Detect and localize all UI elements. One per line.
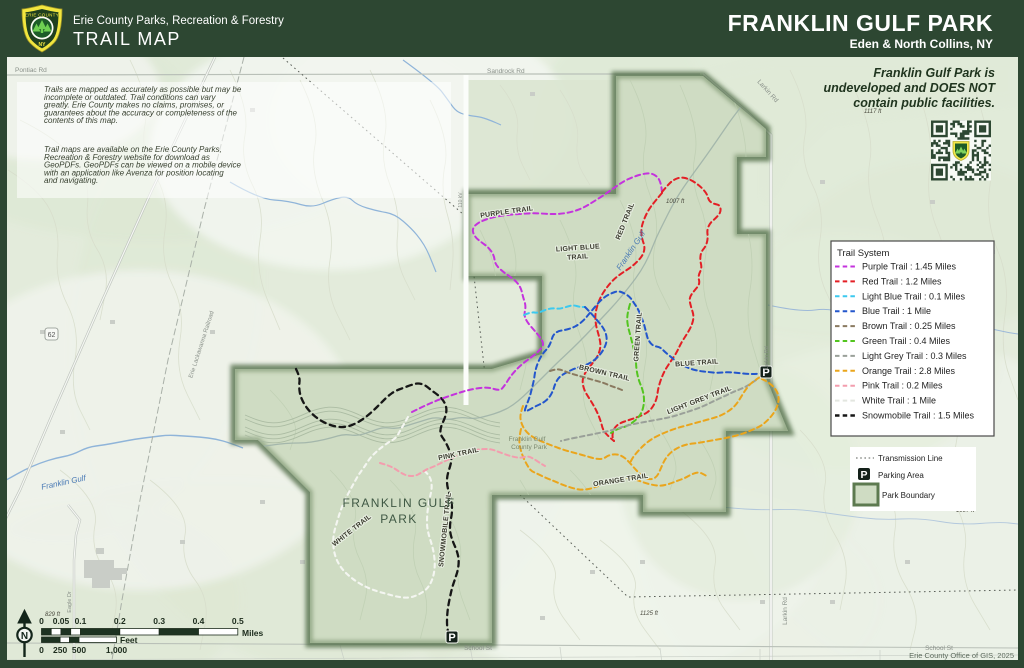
svg-text:Pontiac Rd: Pontiac Rd (15, 67, 47, 74)
svg-text:contain public facilities.: contain public facilities. (853, 96, 995, 110)
svg-text:Snowmobile Trail : 1.5 Miles: Snowmobile Trail : 1.5 Miles (862, 411, 975, 421)
svg-text:White Trail : 1 Mile: White Trail : 1 Mile (862, 396, 936, 406)
svg-text:Feet: Feet (120, 635, 138, 645)
svg-text:1,000: 1,000 (106, 645, 128, 655)
svg-text:ERIE COUNTY: ERIE COUNTY (25, 13, 59, 18)
svg-text:FRANKLIN GULF PARK: FRANKLIN GULF PARK (728, 10, 993, 36)
svg-text:TRAIL MAP: TRAIL MAP (73, 29, 181, 49)
svg-text:Franklin Gulf: Franklin Gulf (509, 436, 546, 443)
svg-text:0.05: 0.05 (53, 616, 70, 626)
svg-text:NY: NY (39, 42, 47, 48)
svg-text:School St: School St (464, 645, 492, 652)
svg-text:Light Grey Trail : 0.3 Miles: Light Grey Trail : 0.3 Miles (862, 351, 967, 361)
svg-text:Eagle Dr: Eagle Dr (67, 591, 73, 613)
svg-text:0: 0 (39, 616, 44, 626)
svg-text:P: P (448, 632, 455, 644)
svg-text:0.2: 0.2 (114, 616, 126, 626)
svg-text:Trail System: Trail System (837, 248, 890, 259)
svg-text:1125 ft: 1125 ft (640, 611, 658, 617)
svg-text:Orange Trail : 2.8 Miles: Orange Trail : 2.8 Miles (862, 366, 956, 376)
svg-text:Green Trail : 0.4 Miles: Green Trail : 0.4 Miles (862, 336, 951, 346)
svg-text:Erie County Office of GIS, 202: Erie County Office of GIS, 2025 (909, 651, 1014, 660)
svg-text:0.1: 0.1 (75, 616, 87, 626)
svg-text:0: 0 (39, 645, 44, 655)
svg-text:P: P (860, 469, 867, 481)
svg-text:0.4: 0.4 (193, 616, 205, 626)
svg-text:Sandrock Rd: Sandrock Rd (487, 68, 525, 75)
svg-text:1007 ft: 1007 ft (666, 199, 685, 205)
svg-text:Brown Trail : 0.25 Miles: Brown Trail : 0.25 Miles (862, 321, 956, 331)
svg-text:Transmission Line: Transmission Line (878, 454, 943, 463)
svg-text:Eden & North Collins, NY: Eden & North Collins, NY (850, 37, 993, 51)
svg-text:Purple Trail : 1.45 Miles: Purple Trail : 1.45 Miles (862, 262, 957, 272)
svg-text:PARK: PARK (380, 512, 417, 526)
svg-text:0.5: 0.5 (232, 616, 244, 626)
svg-text:FRANKLIN GULF: FRANKLIN GULF (343, 496, 456, 510)
svg-text:Park Boundary: Park Boundary (882, 491, 935, 500)
svg-text:Red Trail : 1.2 Miles: Red Trail : 1.2 Miles (862, 276, 942, 286)
svg-text:Franklin Gulf Park is: Franklin Gulf Park is (873, 66, 995, 80)
svg-text:Erie County Parks, Recreation: Erie County Parks, Recreation & Forestry (73, 15, 284, 27)
svg-text:contents of this map.: contents of this map. (44, 116, 118, 125)
svg-text:N: N (21, 631, 28, 642)
svg-text:and navigating.: and navigating. (44, 176, 98, 185)
svg-text:Miles: Miles (242, 628, 264, 638)
svg-text:0.3: 0.3 (153, 616, 165, 626)
svg-text:Blue Trail : 1 Mile: Blue Trail : 1 Mile (862, 306, 931, 316)
svg-text:Larkin Rd: Larkin Rd (764, 346, 770, 370)
svg-text:Parking Area: Parking Area (878, 471, 924, 480)
svg-text:Larkin Rd: Larkin Rd (782, 597, 789, 625)
svg-text:Pink Trail : 0.2 Miles: Pink Trail : 0.2 Miles (862, 381, 943, 391)
svg-text:500: 500 (72, 645, 86, 655)
svg-text:110 kV: 110 kV (458, 192, 464, 208)
svg-text:62: 62 (48, 332, 56, 339)
svg-text:Light Blue Trail : 0.1 Miles: Light Blue Trail : 0.1 Miles (862, 291, 966, 301)
svg-text:County Park: County Park (511, 444, 548, 451)
svg-text:undeveloped and DOES NOT: undeveloped and DOES NOT (823, 81, 996, 95)
svg-text:250: 250 (53, 645, 67, 655)
